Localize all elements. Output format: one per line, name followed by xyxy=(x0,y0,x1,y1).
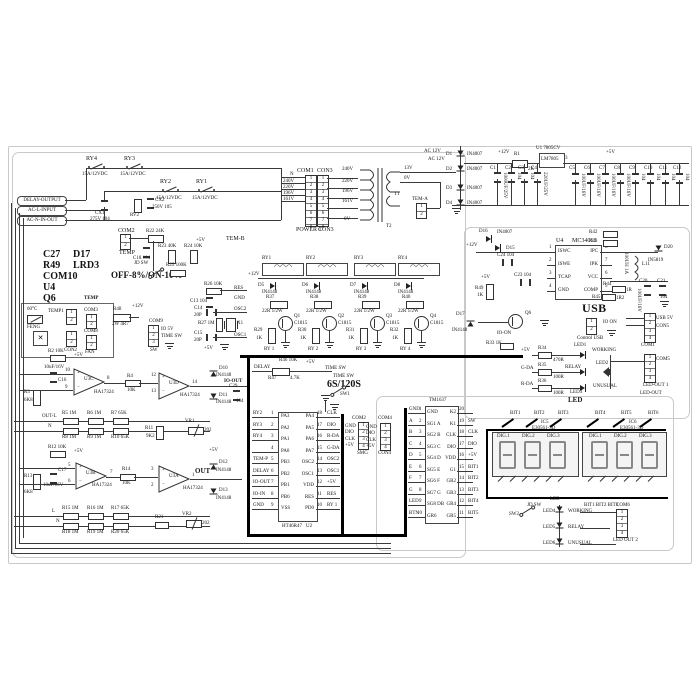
part-ref: R30 xyxy=(298,328,306,334)
pin-name: PB3 xyxy=(281,460,290,466)
part-ref: R26 10K xyxy=(204,282,222,288)
part-ref: C3 xyxy=(518,166,524,172)
part-ref: D10 xyxy=(219,366,228,372)
net-label: N xyxy=(48,424,52,430)
net-label: IO ON xyxy=(603,320,617,326)
part-ref: R47 xyxy=(268,376,276,382)
pin-number: 3 xyxy=(271,434,274,440)
wire xyxy=(497,179,498,205)
wire xyxy=(408,413,425,414)
net-label: +5V xyxy=(74,353,83,359)
wire xyxy=(316,452,340,453)
pin-number: 17 xyxy=(459,442,464,448)
ground-icon xyxy=(325,342,334,348)
part-ref: VR2 xyxy=(182,512,191,518)
net-label: TEM-B xyxy=(226,236,245,243)
part-ref: D2 xyxy=(446,167,452,173)
part-ref: C2 xyxy=(505,166,511,172)
part-value: 10uF/16V xyxy=(44,365,64,371)
part-ref: C15 xyxy=(194,331,202,337)
part-ref: D5 xyxy=(258,283,264,289)
resistor xyxy=(113,314,131,322)
part-ref: C29 xyxy=(229,384,237,390)
connector-pin: 1 xyxy=(149,326,158,333)
connector: 12 xyxy=(120,234,131,250)
part-value: 22R 1/2W xyxy=(354,309,375,315)
wire xyxy=(213,312,247,313)
connector-pin: 1 xyxy=(645,314,655,321)
net-label: GND xyxy=(234,296,245,302)
connector-pin: 1 xyxy=(417,204,426,212)
wire xyxy=(590,180,591,205)
net-label: CLK xyxy=(468,430,478,436)
connector-pin: 7 xyxy=(318,218,328,225)
part-value: HA17324 xyxy=(183,486,203,492)
tap-label: 0V xyxy=(404,176,410,182)
wire xyxy=(23,218,24,538)
connector: 12 xyxy=(86,335,97,350)
wire xyxy=(547,278,555,279)
resistor xyxy=(168,250,176,264)
wire xyxy=(563,163,689,164)
wire xyxy=(457,471,473,472)
net-label: OSC1 xyxy=(327,469,339,475)
net-label: GND xyxy=(366,425,377,431)
pin-name: VDD xyxy=(294,483,314,489)
pin-number: 1 xyxy=(419,407,422,413)
digit-label: DIG.3 xyxy=(639,434,652,440)
relay-coil: ◠◠◠ xyxy=(262,263,304,276)
pin-number: 18 xyxy=(459,430,464,436)
pin-number: 1 xyxy=(549,245,552,251)
bus-wire xyxy=(341,414,344,536)
tap-label: 0V xyxy=(344,217,350,223)
part-ref: Q6 xyxy=(525,311,531,317)
part-value: C1815 xyxy=(294,321,307,327)
part-value: IN4007 xyxy=(497,230,512,236)
ground-icon xyxy=(417,342,426,348)
part-value: C1815 xyxy=(430,321,443,327)
diode-icon xyxy=(457,166,465,175)
connector-pin: 3 xyxy=(645,329,655,336)
resistor xyxy=(312,328,320,344)
wire xyxy=(620,180,621,205)
part-value: 100UF/16V xyxy=(636,288,641,312)
wire xyxy=(252,429,278,430)
fan-icon: ✕ xyxy=(33,331,48,346)
pin-name: PA6 xyxy=(294,437,314,443)
net-label: DELAY xyxy=(253,469,269,475)
relay-contact-icon xyxy=(198,184,216,192)
pin-number: 16 xyxy=(459,453,464,459)
part-value: 9K2 xyxy=(146,434,155,440)
net-label: +5V xyxy=(306,360,315,366)
resistor xyxy=(362,301,380,309)
wire xyxy=(252,440,278,441)
net-label: CON5 xyxy=(656,324,669,330)
wire xyxy=(316,486,340,487)
pin-name: PA7 xyxy=(294,449,314,455)
net-label: TIME SW xyxy=(161,334,182,340)
part-ref: R38 xyxy=(310,295,318,301)
led-icon xyxy=(580,351,589,359)
wire xyxy=(190,479,242,480)
net-label: IO-OUT xyxy=(253,480,270,486)
connector-pin: 1 xyxy=(87,315,96,322)
ground-icon xyxy=(330,404,339,410)
net-label: IO-ON xyxy=(497,331,511,337)
seven-segment-digit xyxy=(616,441,633,469)
wire xyxy=(316,440,340,441)
part-ref: R37 xyxy=(266,295,274,301)
pin-number: 7 xyxy=(419,476,422,482)
net-label: BIT5 xyxy=(621,411,632,417)
resistor xyxy=(148,235,164,243)
net-label: +5V xyxy=(521,348,530,354)
connector-pin: 1 xyxy=(306,176,316,183)
net-label: JD SW xyxy=(134,261,148,267)
connector-pin: 2 xyxy=(87,322,96,328)
pin-name: G1 xyxy=(436,468,456,474)
part-value: 1K xyxy=(392,336,398,342)
wire xyxy=(679,180,680,205)
part-ref: R19 1M xyxy=(87,530,104,536)
wire xyxy=(104,191,105,200)
connector-label: SMG xyxy=(357,451,368,457)
connector-label: CON4 xyxy=(378,451,391,457)
resistor xyxy=(88,418,104,425)
opamp-minus: − xyxy=(79,479,82,485)
connector: 12 xyxy=(416,203,427,219)
section-label: LED xyxy=(568,397,582,405)
part-ref: R27 1M xyxy=(198,321,215,327)
resistor xyxy=(88,523,104,530)
part-value: IN4007 xyxy=(467,186,482,192)
part-ref: RY2 xyxy=(306,256,315,262)
part-value: 275V 104 xyxy=(90,217,110,223)
part-ref: R14 xyxy=(122,467,130,473)
connector-pin: 3 xyxy=(306,190,316,197)
wire xyxy=(252,463,278,464)
wire xyxy=(316,463,340,464)
pin-name: K1 xyxy=(436,422,456,428)
part-ref: R15 1M xyxy=(62,506,79,512)
connector-pin: 2 xyxy=(381,431,390,438)
pin-name: OSC1 xyxy=(294,472,314,478)
diode-icon xyxy=(457,151,465,160)
pin-number: 17 xyxy=(317,423,322,429)
part-ref: R2 10K xyxy=(48,349,64,355)
wire xyxy=(220,290,247,291)
net-label: RY 1 xyxy=(327,503,337,509)
part-value: 1R xyxy=(626,288,632,294)
pin-name: IPK xyxy=(578,262,598,268)
wire xyxy=(408,494,425,495)
resistor xyxy=(33,390,41,406)
part-ref: U2 xyxy=(306,524,312,530)
wire xyxy=(635,180,636,205)
connector: 123 xyxy=(148,325,159,347)
part-ref: D16 xyxy=(479,229,488,235)
wire xyxy=(408,436,425,437)
wire xyxy=(457,436,473,437)
net-label: G-DA xyxy=(521,366,534,372)
resistor xyxy=(113,523,129,530)
coil-glyph: ◠◠◠ xyxy=(399,264,439,272)
wire xyxy=(547,252,555,253)
part-ref: C12 xyxy=(673,166,681,172)
wire xyxy=(408,482,425,483)
connector: 12 xyxy=(586,318,597,335)
coil-glyph: ◠◠◠ xyxy=(355,264,395,272)
ref-text: R49 xyxy=(43,260,60,271)
opamp-minus: − xyxy=(162,389,165,395)
net-label: TIME SW xyxy=(325,366,346,372)
part-ref: R36 xyxy=(538,379,546,385)
wire xyxy=(524,179,525,205)
part-ref: R34 xyxy=(538,346,546,352)
connector-pin: 1 xyxy=(617,510,627,517)
wire xyxy=(106,477,120,478)
resistor xyxy=(268,328,276,344)
wire xyxy=(400,182,440,183)
net-label: +5V xyxy=(606,150,615,156)
diode-icon xyxy=(467,318,475,327)
pin-number: 5 xyxy=(68,463,71,469)
ref-text: C27 xyxy=(43,249,60,260)
part-ref: LED6 xyxy=(543,541,555,547)
wire xyxy=(600,265,612,266)
part-ref: R42 xyxy=(589,230,597,236)
net-label: DIO xyxy=(327,423,336,429)
part-value: IN4007 xyxy=(467,152,482,158)
net-label: RELAY xyxy=(565,365,581,371)
resistor xyxy=(603,240,618,247)
pin-number: 7 xyxy=(110,470,113,476)
part-ref: R25 100K xyxy=(166,263,187,269)
wire xyxy=(650,180,651,205)
wire xyxy=(282,177,305,178)
net-label: USB 5V xyxy=(656,316,673,322)
pin-number: 19 xyxy=(459,419,464,425)
connector-pin: 2 xyxy=(617,517,627,524)
pin-name: PD0 xyxy=(294,506,314,512)
resistor xyxy=(113,428,129,435)
pin-number: 4 xyxy=(549,284,552,290)
tap-label: 220V xyxy=(342,179,353,185)
digit-label: DIG.1 xyxy=(589,434,602,440)
net-label: +12V xyxy=(498,150,509,156)
ref-text: D17 xyxy=(73,249,90,260)
led-icon xyxy=(556,539,564,548)
net-label: DIO xyxy=(345,430,354,436)
diode-icon xyxy=(270,282,279,290)
wire xyxy=(282,201,305,202)
part-ref: R16 1M xyxy=(87,506,104,512)
wire xyxy=(281,168,282,220)
wire xyxy=(408,471,425,472)
part-value: 104 xyxy=(655,173,660,181)
net-label: +12V xyxy=(132,304,143,310)
net-label: BIT2 xyxy=(468,476,479,482)
net-label: LED-OUT 1 xyxy=(643,383,668,389)
part-ref: X1 xyxy=(237,321,243,327)
connector-pin: 2 xyxy=(121,243,130,250)
connector-label: SW xyxy=(150,348,158,354)
pin-number: 8 xyxy=(107,376,110,382)
pin-number: 4 xyxy=(419,442,422,448)
section-label: LED xyxy=(550,497,560,503)
wire xyxy=(457,494,473,495)
tap-label: 13V xyxy=(404,166,413,172)
net-label: +5V xyxy=(204,346,213,352)
pin-number: 4 xyxy=(271,446,274,452)
part-ref: IC6 xyxy=(629,420,637,426)
wire xyxy=(408,517,425,518)
connector-pin: 2 xyxy=(87,343,96,349)
terminal-pill: AC-N-IN-OUT xyxy=(17,216,67,226)
pin-number: 20 xyxy=(459,407,464,413)
led-icon xyxy=(556,523,564,532)
diode-icon xyxy=(457,185,465,194)
wire xyxy=(252,486,278,487)
ground-icon xyxy=(607,330,616,336)
connector: 12345678 xyxy=(305,175,317,227)
part-value: 202 xyxy=(204,428,212,434)
part-ref: D13 xyxy=(219,488,228,494)
net-label: UNUSUAL xyxy=(593,384,617,390)
wire xyxy=(610,361,644,362)
net-label: IO-IN xyxy=(253,492,265,498)
schematic-sheet: DELAY-OUTPUT AC-L-INPUT AC-N-IN-OUT RY4 … xyxy=(0,0,700,700)
wire xyxy=(497,164,498,172)
pin-number: 3 xyxy=(549,271,552,277)
part-ref: D8 xyxy=(394,283,400,289)
part-value: C1815 xyxy=(338,321,351,327)
connector: 12345678 xyxy=(317,175,329,227)
wire xyxy=(285,330,286,342)
pin-number: 2 xyxy=(549,258,552,264)
net-label: CLK xyxy=(345,437,355,443)
pin-name: GR5 xyxy=(436,514,456,520)
net-label: RY3 xyxy=(253,423,262,429)
pin-name: PA2 xyxy=(281,426,289,432)
part-ref: R5 1M xyxy=(62,411,76,417)
wire xyxy=(377,330,378,342)
pin-name: ISWE xyxy=(558,262,570,268)
net-label: A xyxy=(409,419,413,425)
wire xyxy=(15,208,16,548)
wire xyxy=(665,180,666,205)
pin-number: 3 xyxy=(565,156,568,162)
wire xyxy=(20,468,75,469)
coil-glyph: ◠◠◠ xyxy=(263,264,303,272)
terminal-label: AC-N-IN-OUT xyxy=(18,217,66,225)
thermostat-icon xyxy=(27,315,43,324)
part-ref: C6 xyxy=(584,166,590,172)
part-value: IN4148 xyxy=(216,496,231,502)
ground-icon xyxy=(373,342,382,348)
part-value: HA17324 xyxy=(92,483,112,489)
part-value: HA17324 xyxy=(94,390,114,396)
connector-pin: 1 xyxy=(587,319,596,327)
pin-number: 13 xyxy=(317,469,322,475)
part-ref: R1 xyxy=(514,152,520,158)
wire xyxy=(457,505,473,506)
diode-icon xyxy=(406,282,415,290)
part-ref: RY1 xyxy=(262,256,271,262)
part-ref: C8 xyxy=(614,166,620,172)
wire xyxy=(316,498,340,499)
ground-icon xyxy=(281,342,290,348)
part-ref: C4 xyxy=(531,166,537,172)
resistor xyxy=(612,286,626,293)
part-ref: U3D xyxy=(169,381,179,387)
ground-icon xyxy=(220,344,229,350)
connector-label: COM6 xyxy=(616,503,630,509)
connector-pin: 3 xyxy=(381,438,390,445)
part-ref: R46 10K xyxy=(279,358,297,364)
net-label: R-DA xyxy=(521,382,533,388)
connector: 1234 xyxy=(644,354,656,383)
part-ref: R48 xyxy=(113,307,121,313)
pin-number: 11 xyxy=(317,492,322,498)
chip-label: TM1637 xyxy=(429,398,447,404)
connector-pin: 4 xyxy=(617,531,627,537)
terminal-label: DELAY-OUTPUT xyxy=(18,197,66,205)
net-label: OSC2 xyxy=(327,457,339,463)
part-ref: TEMP1 xyxy=(48,309,64,315)
seven-segment-digit xyxy=(524,441,541,469)
pin-number: 6 xyxy=(605,271,608,277)
part-ref: D11 xyxy=(219,393,227,399)
part-ref: D1 xyxy=(446,152,452,158)
pin-number: 1 xyxy=(271,411,274,417)
connector-pin: 4 xyxy=(645,336,655,342)
net-label: B xyxy=(409,430,412,436)
part-ref: LED3 xyxy=(570,390,582,396)
resistor xyxy=(360,328,368,344)
pin-number: 5 xyxy=(271,457,274,463)
part-value: 20P xyxy=(194,313,202,319)
connector-pin: 1 xyxy=(67,310,76,318)
part-value: 22R 1/2W xyxy=(306,309,327,315)
part-ref: R32 xyxy=(390,328,398,334)
capacitor xyxy=(520,279,531,286)
pin-name: IPC xyxy=(578,249,598,255)
capacitor xyxy=(644,285,651,296)
wire xyxy=(421,330,422,342)
connector: 1234 xyxy=(616,509,628,538)
net-label: BIT4 xyxy=(595,411,606,417)
part-value: 470R xyxy=(553,358,564,364)
part-ref: T2 xyxy=(386,224,392,230)
transistor-icon xyxy=(322,316,337,331)
wire xyxy=(327,218,358,219)
connector-pin: 1 xyxy=(87,336,96,343)
relay-contact-icon xyxy=(126,161,144,169)
part-value: 104 xyxy=(236,399,244,405)
part-ref: R7 65K xyxy=(111,411,127,417)
part-value: 2W 4R7 xyxy=(112,322,129,328)
part-value: 104 xyxy=(670,173,675,181)
pin-number: 2 xyxy=(419,419,422,425)
part-value: 22R 1/2W xyxy=(262,309,283,315)
net-label: AC 12V xyxy=(428,157,445,163)
part-ref: U3A xyxy=(169,474,179,480)
pin-name: PA4 xyxy=(294,414,314,420)
part-value: 104 xyxy=(684,173,689,181)
